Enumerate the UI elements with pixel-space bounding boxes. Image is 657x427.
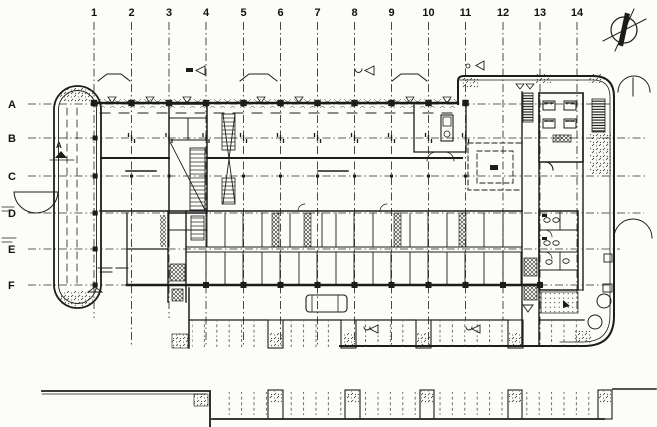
floor-plan-drawing: 1234567891011121314ABCDEFA — [0, 0, 657, 427]
grid-label-row-A: A — [8, 99, 16, 111]
grid-label-col-9: 9 — [388, 7, 394, 19]
bay-dot — [130, 175, 133, 178]
bay-dot — [242, 175, 245, 178]
grid-label-col-11: 11 — [460, 7, 472, 19]
grid-label-row-C: C — [8, 171, 16, 183]
grid-label-col-3: 3 — [166, 7, 172, 19]
grid-label-col-5: 5 — [240, 7, 246, 19]
grid-label-row-F: F — [8, 280, 15, 292]
grid-label-col-6: 6 — [277, 7, 283, 19]
section-marker-a-label: A — [56, 141, 62, 150]
grid-label-col-12: 12 — [497, 7, 509, 19]
grid-label-col-4: 4 — [203, 7, 210, 19]
grid-label-col-10: 10 — [422, 7, 434, 19]
grid-label-col-8: 8 — [351, 7, 357, 19]
bay-dot — [427, 175, 430, 178]
bay-dot — [390, 175, 393, 178]
grid-label-row-E: E — [8, 244, 15, 256]
grid-label-col-13: 13 — [534, 7, 546, 19]
paper-background — [0, 0, 657, 427]
grid-label-row-D: D — [8, 208, 16, 220]
grid-label-col-7: 7 — [314, 7, 320, 19]
grid-label-col-1: 1 — [91, 7, 97, 19]
grid-label-row-B: B — [8, 133, 16, 145]
bay-dot — [279, 175, 282, 178]
bay-dot — [316, 175, 319, 178]
grid-label-col-2: 2 — [128, 7, 134, 19]
grid-label-col-14: 14 — [571, 7, 584, 19]
bay-dot — [464, 175, 467, 178]
bay-dot — [353, 175, 356, 178]
